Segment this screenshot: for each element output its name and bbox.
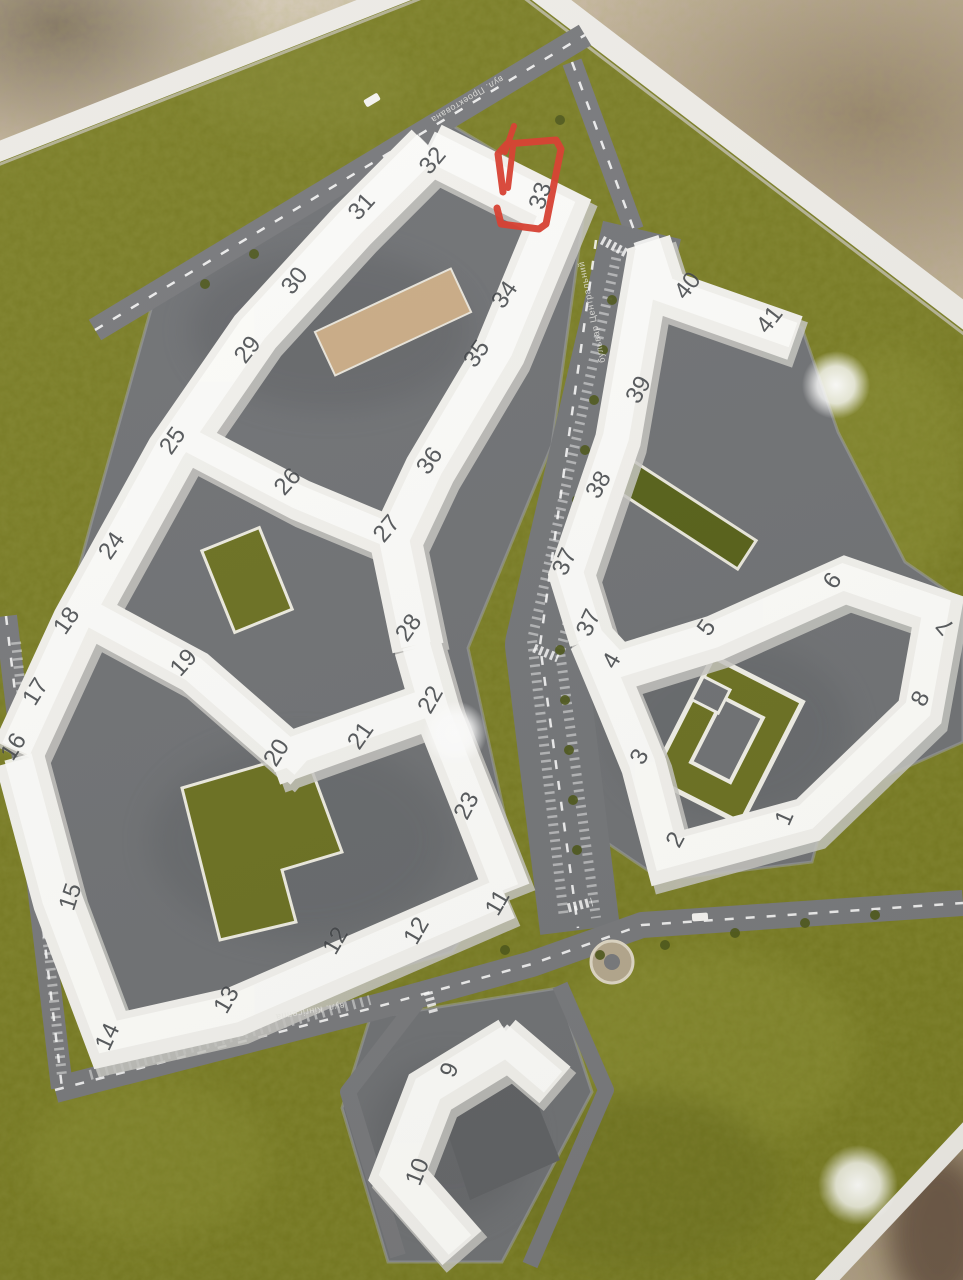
site-model-scene	[0, 0, 963, 1280]
roundabout	[591, 941, 633, 983]
architectural-model-photo: 3233313029252418171615141312121123222120…	[0, 0, 963, 1280]
